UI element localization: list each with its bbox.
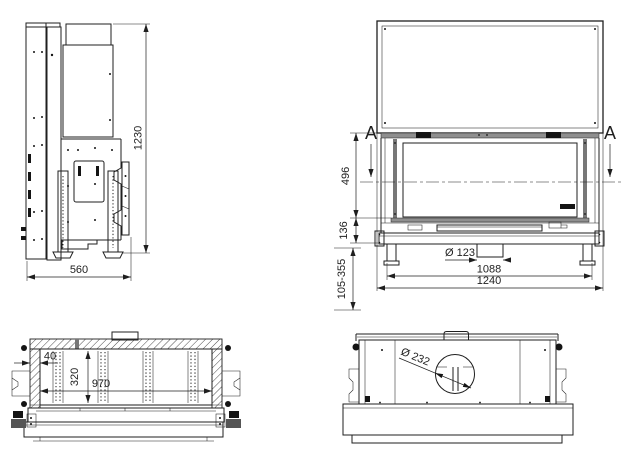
handle-tab: [444, 332, 469, 341]
bracket-left: [349, 369, 359, 402]
rivet-dots: [21, 51, 127, 241]
section-view-dimensions: 40 320 970: [14, 351, 212, 404]
door-frame-left: [393, 139, 397, 218]
dim-label-firebox-width: 970: [92, 378, 110, 390]
flue-connector: [66, 24, 111, 45]
front-frame-strip: [122, 162, 129, 235]
foot-left: [384, 261, 399, 265]
vent-slot-small: [408, 225, 422, 230]
technical-drawing-canvas: 1230 560: [0, 0, 624, 460]
dim-label-base-height: 136: [338, 221, 350, 239]
side-view: 1230 560: [21, 23, 150, 281]
knob-left: [353, 344, 360, 351]
foot-right: [580, 261, 595, 265]
air-inlet-duct: [477, 244, 503, 257]
bracket-right: [222, 371, 240, 396]
section-letter-right: A: [604, 123, 616, 143]
dim-label-overall-width: 1240: [477, 275, 501, 287]
door-frame-right: [583, 139, 587, 218]
drawing-sheet: 1230 560: [0, 0, 624, 460]
front-foot: [103, 252, 123, 258]
dim-label-firebox-height: 320: [69, 368, 81, 386]
right-wall-hatched: [212, 349, 222, 408]
knob-right-top: [225, 345, 231, 351]
knob-left-top: [21, 345, 27, 351]
knob-right-bottom: [225, 401, 231, 407]
rear-foot: [53, 252, 73, 258]
back-panel-inner: [47, 27, 61, 260]
flue-box: [63, 45, 113, 137]
dim-label-inlet-diameter: Ø 123: [445, 247, 475, 259]
dim-label-wall-thickness: 40: [44, 351, 56, 363]
brand-logo-mark: [560, 204, 575, 209]
dim-label-height: 1230: [133, 126, 145, 150]
section-marker-left: A: [365, 123, 377, 177]
glass-sill-bar: [391, 218, 589, 222]
base-plate: [343, 404, 573, 435]
leg-right: [583, 244, 592, 261]
dim-label-glass-height: 496: [340, 167, 352, 185]
base-platform: [379, 233, 599, 244]
firebox-interior: [40, 349, 212, 405]
leg-left: [387, 244, 396, 261]
top-view: Ø 232: [343, 332, 573, 444]
top-frame-bar: [381, 133, 599, 138]
dim-label-depth: 560: [70, 264, 88, 276]
top-plate-hatched: [30, 339, 222, 349]
bracket-right: [556, 369, 566, 402]
front-view: A A 496 136 105-355 Ø 123: [334, 21, 622, 310]
left-wall-hatched: [30, 349, 40, 408]
side-view-dimensions: 1230 560: [27, 24, 150, 281]
back-panel-cap: [26, 23, 60, 27]
dim-label-leg-span: 1088: [477, 264, 501, 276]
section-marker-right: A: [604, 123, 616, 177]
glass-door: [403, 143, 577, 217]
bottom-tray: [24, 422, 223, 437]
air-control-slot: [437, 225, 542, 231]
knob-right: [556, 344, 563, 351]
corner-hardware-right: [216, 411, 241, 428]
dim-label-flue-diameter: Ø 232: [399, 346, 431, 369]
section-view-a-a: 40 320 970: [11, 332, 241, 441]
bracket-left: [12, 371, 30, 396]
corner-hardware-left: [11, 411, 36, 428]
back-heat-shield: [26, 23, 46, 259]
dim-label-leg-range: 105-355: [336, 259, 348, 299]
bottom-lip: [352, 435, 562, 443]
knob-left-bottom: [21, 401, 27, 407]
base-frame: [28, 408, 224, 422]
hood-shield: [377, 21, 603, 133]
ash-shelf: [62, 240, 97, 249]
